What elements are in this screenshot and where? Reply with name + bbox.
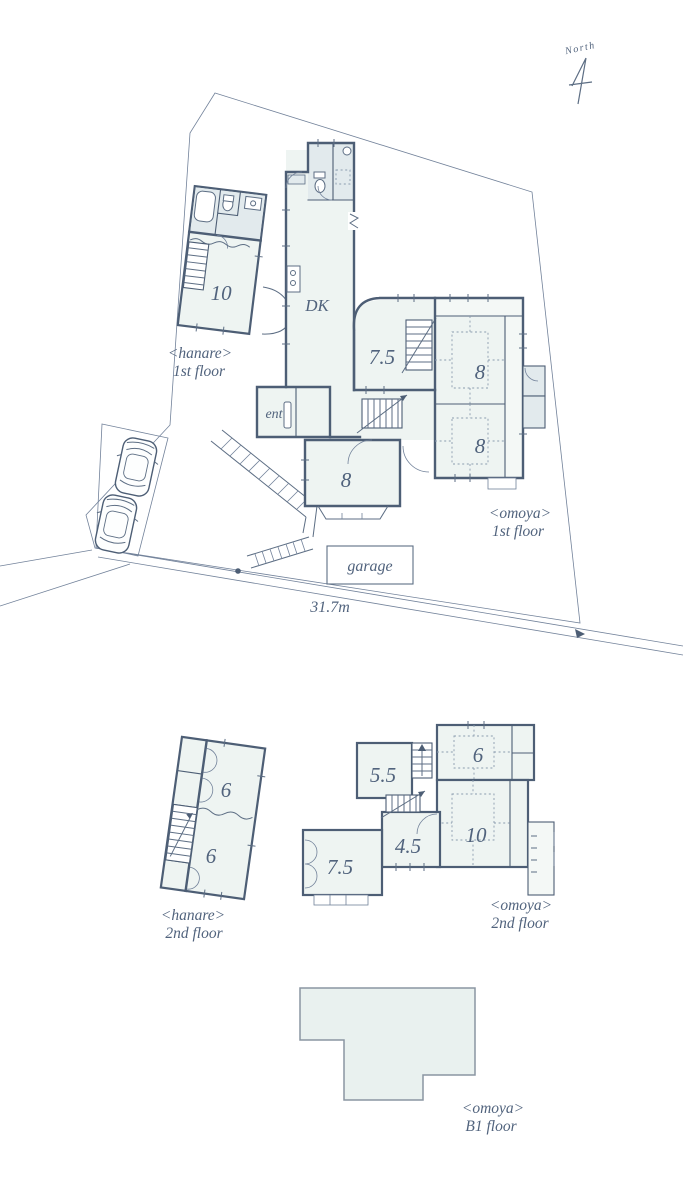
room-5-5-label: 5.5 bbox=[370, 763, 396, 787]
bay-window bbox=[318, 506, 388, 519]
omoya-2f: 5.5 6 4.5 10 7.5 <omoya> 2nd floor bbox=[303, 721, 554, 932]
room-10-label: 10 bbox=[211, 281, 233, 305]
omoya-b1-floor: B1 floor bbox=[465, 1118, 517, 1135]
room-7-5-label: 7.5 bbox=[369, 345, 395, 369]
room-10-label: 10 bbox=[466, 823, 488, 847]
north-indicator: North bbox=[563, 40, 596, 104]
dk-label: DK bbox=[304, 296, 330, 315]
road-dimension-label: 31.7m bbox=[309, 599, 350, 616]
porch-step bbox=[488, 478, 516, 489]
omoya-2f-name: <omoya> bbox=[490, 897, 552, 914]
annex-bath bbox=[523, 366, 545, 396]
hanare-2f-floor: 2nd floor bbox=[165, 925, 223, 942]
hanare-2f-name: <hanare> bbox=[161, 907, 225, 924]
north-label: North bbox=[563, 40, 596, 57]
omoya-1f-name: <omoya> bbox=[489, 505, 551, 522]
garage: garage bbox=[327, 546, 413, 584]
room-8-s-label: 8 bbox=[341, 468, 352, 492]
omoya-2f-floor: 2nd floor bbox=[491, 915, 549, 932]
hanare-1f-building: 10 bbox=[177, 186, 270, 338]
sink-icon bbox=[244, 196, 261, 210]
veranda-step bbox=[314, 895, 368, 905]
dimension-arrow bbox=[575, 629, 585, 638]
room-8-se-label: 8 bbox=[475, 434, 486, 458]
corner-sink-icon bbox=[343, 147, 351, 155]
bathtub-icon bbox=[194, 190, 217, 222]
omoya-1f-floor: 1st floor bbox=[492, 523, 545, 540]
outdoor-stairs bbox=[211, 430, 317, 568]
room-6-n-label: 6 bbox=[221, 778, 232, 802]
balcony bbox=[528, 822, 554, 895]
annex-wc bbox=[523, 396, 545, 428]
hanare-1f-name: <hanare> bbox=[168, 345, 232, 362]
omoya-2f-top-stairs bbox=[412, 743, 432, 778]
floor-plan-canvas: garage 31.7m 10 <hanare> 1st floor bbox=[0, 0, 683, 1200]
floor-plan-page: garage 31.7m 10 <hanare> 1st floor bbox=[0, 0, 683, 1200]
dimension-dot bbox=[235, 568, 241, 574]
hanare-2f-building bbox=[160, 733, 269, 904]
car-2 bbox=[90, 492, 143, 556]
hanare-2f: 6 6 <hanare> 2nd floor bbox=[160, 733, 269, 942]
room-7-5-label: 7.5 bbox=[327, 855, 353, 879]
north-arrow-icon bbox=[569, 58, 592, 104]
omoya-1f: DK ent 7.5 bbox=[257, 139, 551, 540]
hanare-1f: 10 <hanare> 1st floor bbox=[168, 186, 292, 380]
room-6-label: 6 bbox=[473, 743, 484, 767]
hanare-1f-floor: 1st floor bbox=[173, 363, 226, 380]
garage-label: garage bbox=[347, 558, 392, 575]
ent-label: ent bbox=[265, 407, 283, 422]
parking-area bbox=[90, 424, 168, 556]
omoya-b1-name: <omoya> bbox=[462, 1100, 524, 1117]
entrance-door bbox=[284, 402, 291, 428]
omoya-b1: <omoya> B1 floor bbox=[300, 988, 524, 1135]
kitchen-sink-icon bbox=[287, 266, 300, 292]
b1-outline bbox=[300, 988, 475, 1100]
room-4-5-label: 4.5 bbox=[395, 834, 421, 858]
toilet-icon bbox=[315, 180, 325, 193]
room-6-s-label: 6 bbox=[206, 844, 217, 868]
car-1 bbox=[110, 435, 163, 499]
room-8-ne-label: 8 bbox=[475, 360, 486, 384]
